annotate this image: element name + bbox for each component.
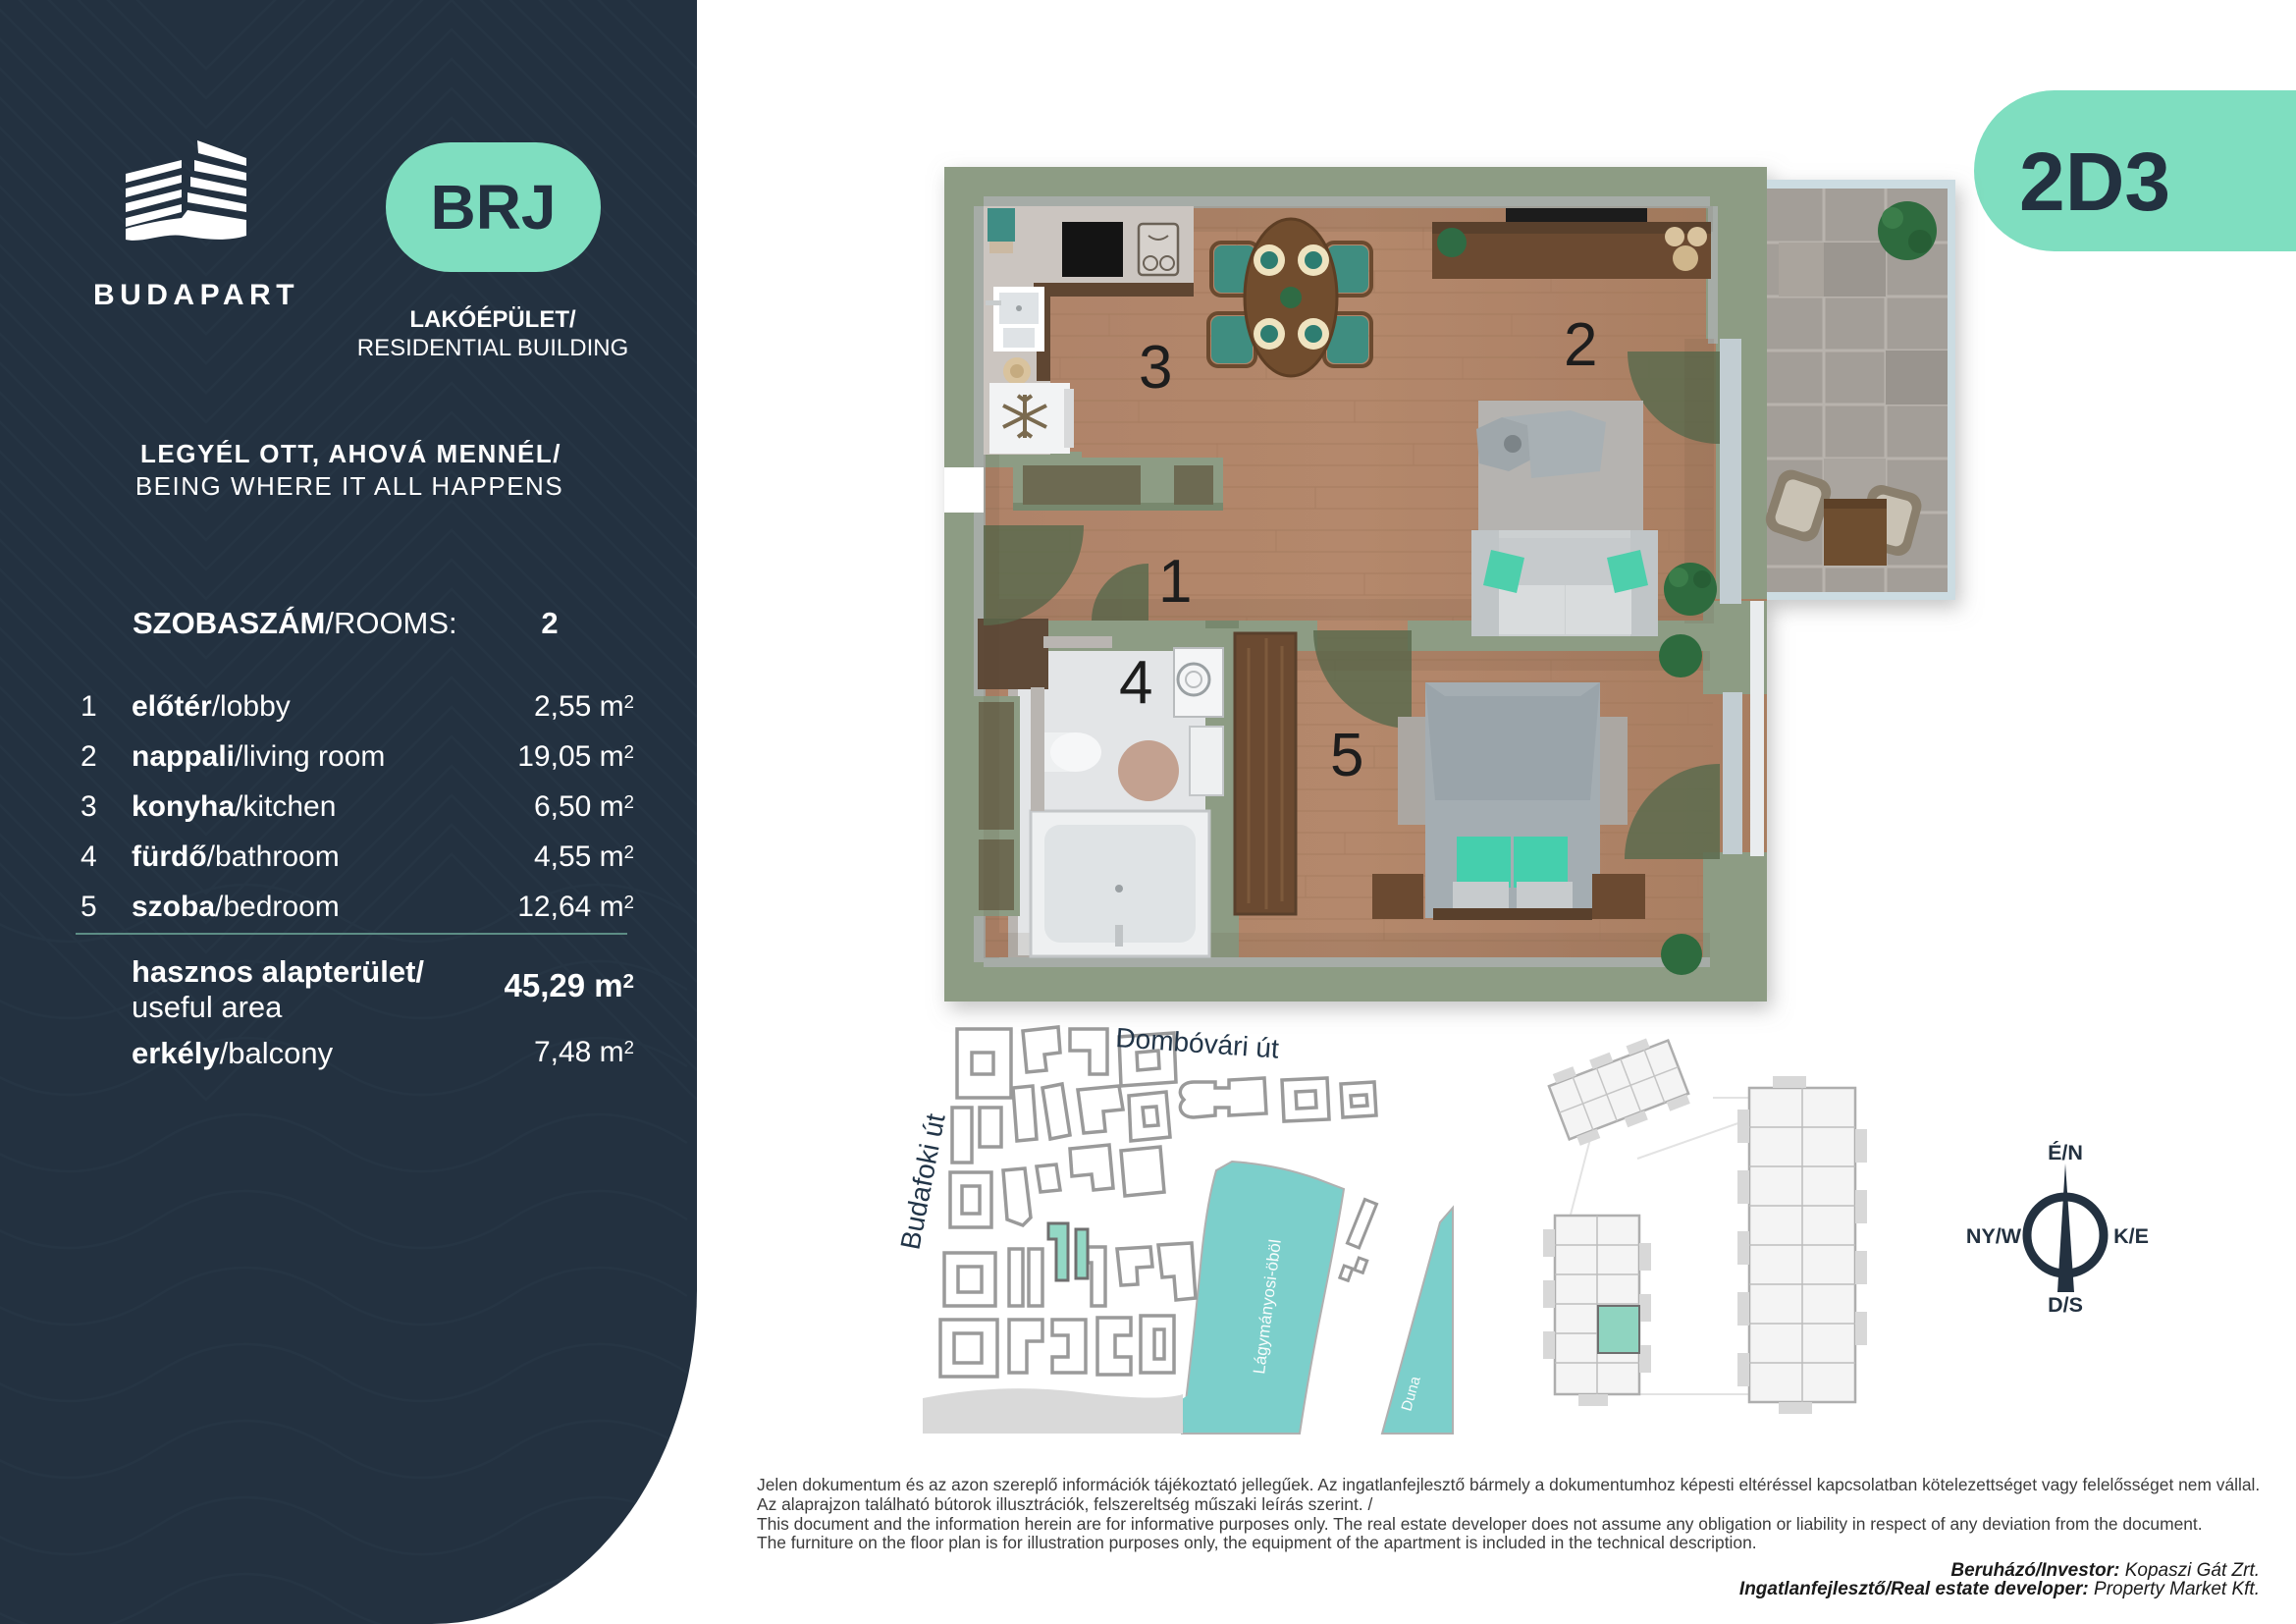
svg-text:É/N: É/N — [2048, 1140, 2083, 1164]
svg-text:NY/W: NY/W — [1966, 1224, 2022, 1248]
svg-text:K/E: K/E — [2113, 1224, 2149, 1248]
svg-text:D/S: D/S — [2048, 1293, 2083, 1317]
